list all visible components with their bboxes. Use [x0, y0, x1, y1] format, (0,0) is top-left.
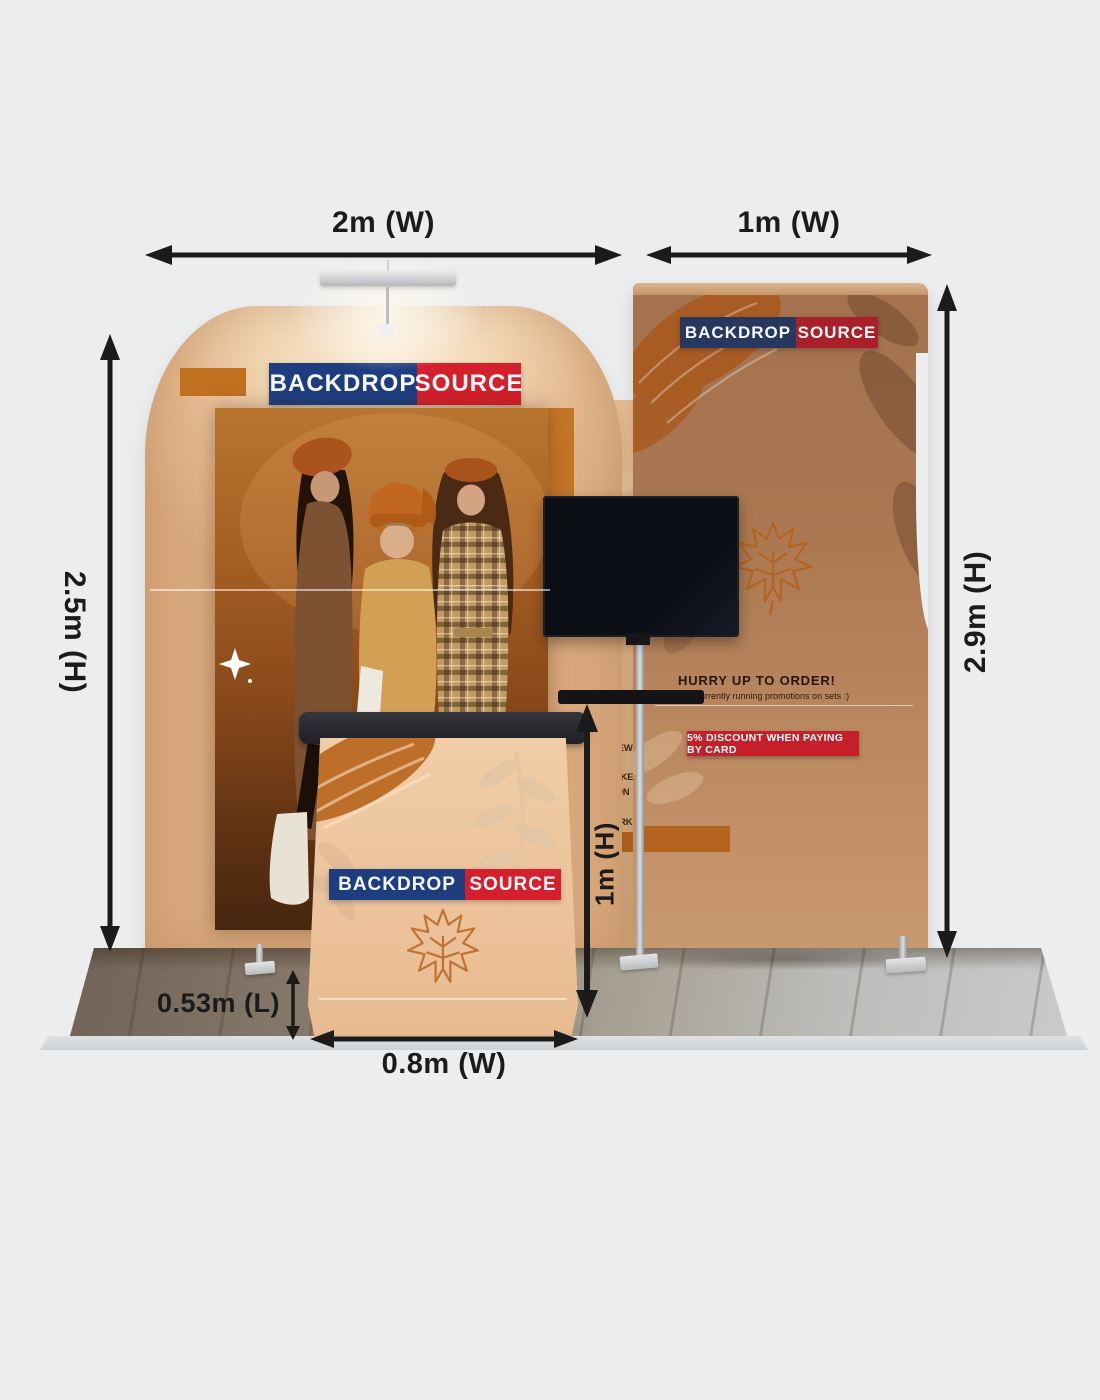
dimension-label-main-height: 2.5m (H)	[57, 571, 91, 693]
dimension-label-counter-depth: 0.53m (L)	[100, 988, 280, 1019]
brand-logo: BACKDROP SOURCE	[329, 869, 561, 900]
brand-word-backdrop: BACKDROP	[680, 317, 796, 348]
product-diagram: RIEND LUIGI RETS PUMA HOMAGE TO NEW CITY…	[0, 0, 1100, 1400]
arch-accent-rect	[180, 368, 246, 396]
brand-logo: BACKDROP SOURCE	[680, 317, 878, 348]
panel-top-face	[633, 283, 928, 295]
dimension-label-main-width: 2m (W)	[145, 206, 622, 240]
offer-banner: 5% DISCOUNT WHEN PAYING BY CARD	[687, 731, 859, 756]
dimension-label-side-height: 2.9m (H)	[959, 551, 993, 673]
tv-stand-pole	[636, 640, 644, 960]
panel-support-foot	[886, 957, 927, 974]
backdrop-shine-line	[150, 589, 550, 591]
brand-word-source: SOURCE	[465, 869, 561, 900]
dimension-arrow-counter-depth	[282, 970, 304, 1040]
counter-seam-line	[319, 998, 567, 1000]
lamp-connector	[378, 324, 395, 337]
maple-leaf-outline-icon	[735, 523, 811, 615]
arch-accent-stripe	[548, 408, 574, 498]
dimension-arrow-main-width	[145, 242, 622, 268]
counter-body: BACKDROP SOURCE	[308, 738, 578, 1038]
panel-subline: re currently running promotions on sets …	[685, 691, 925, 701]
panel-accent-strip	[640, 826, 730, 852]
tv-mount-bracket	[626, 633, 650, 645]
dimension-label-counter-width: 0.8m (W)	[310, 1048, 578, 1081]
lamp-stem	[386, 285, 389, 327]
panel-divider	[655, 705, 913, 706]
tv-screen	[543, 496, 739, 637]
dimension-arrow-side-width	[646, 242, 932, 268]
dimension-arrow-main-height	[97, 334, 123, 952]
brand-word-backdrop: BACKDROP	[329, 869, 465, 900]
maple-leaf-outline-icon	[408, 910, 478, 982]
dimension-arrow-side-height	[934, 284, 960, 958]
media-shelf	[558, 690, 704, 704]
brand-word-source: SOURCE	[796, 317, 878, 348]
dimension-label-counter-height: 1m (H)	[590, 822, 621, 906]
panel-headline: HURRY UP TO ORDER!	[678, 673, 918, 688]
lamp-bar-icon	[320, 271, 456, 286]
dimension-label-side-width: 1m (W)	[646, 206, 932, 240]
promo-counter: BACKDROP SOURCE	[306, 712, 580, 1038]
